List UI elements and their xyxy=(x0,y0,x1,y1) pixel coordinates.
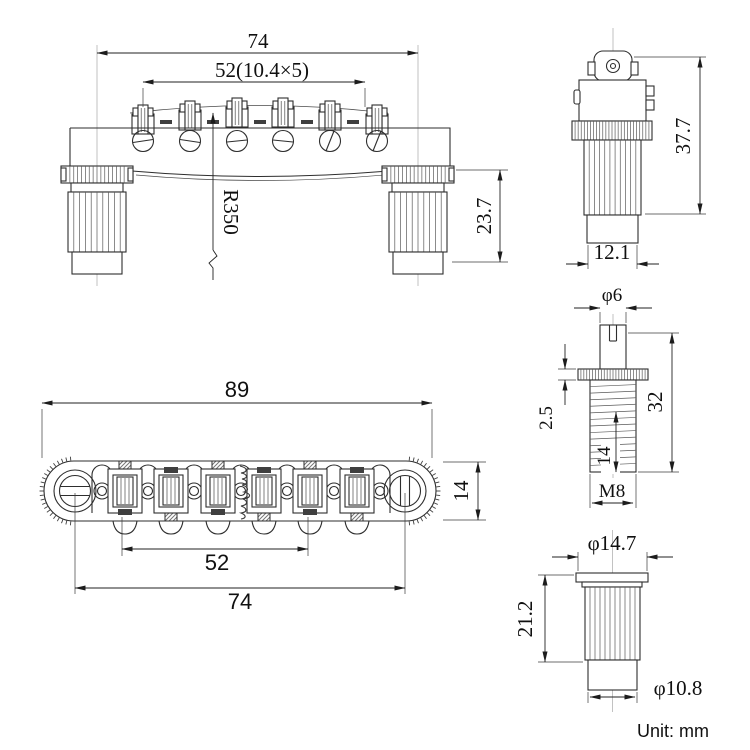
dim-front-string-spacing: 52(10.4×5) xyxy=(143,58,365,107)
side-view: 37.7 12.1 xyxy=(566,28,706,269)
dim-front-stud-height: 23.7 xyxy=(452,170,508,262)
dim-front-string-spacing-label: 52(10.4×5) xyxy=(215,58,309,82)
front-saddles xyxy=(132,98,388,134)
dim-front-overall-width-label: 74 xyxy=(248,29,270,53)
dim-stud-thread-size: M8 xyxy=(590,474,636,508)
dim-stud-length-label: 32 xyxy=(643,392,667,413)
top-underside-tabs xyxy=(113,521,369,534)
front-view: 74 52(10.4×5) R350 23.7 xyxy=(61,29,508,286)
stud-head xyxy=(600,325,626,369)
front-height-screws xyxy=(133,131,388,152)
side-thumbwheel xyxy=(572,121,652,140)
dim-stud-collar-thickness: 2.5 xyxy=(536,344,576,430)
dim-top-body-width-label: 14 xyxy=(449,480,473,502)
saddle-radius-arc xyxy=(130,106,388,114)
dim-front-saddle-radius: R350 xyxy=(209,113,243,280)
technical-drawing-page: 74 52(10.4×5) R350 23.7 xyxy=(0,0,750,750)
stud-collar xyxy=(578,369,648,380)
top-bridge-body xyxy=(44,461,436,521)
side-bushing xyxy=(584,140,641,243)
dim-bushing-body-diameter-label: φ10.8 xyxy=(654,676,703,700)
dim-top-overall-length: 89 xyxy=(42,377,432,458)
dim-front-stud-height-label: 23.7 xyxy=(472,198,496,235)
bushing-body xyxy=(576,573,648,690)
dim-bushing-height: 21.2 xyxy=(513,575,583,662)
dim-stud-thread-size-label: M8 xyxy=(599,481,625,502)
stud-view: φ6 2.5 32 14 M8 xyxy=(536,285,679,508)
dim-side-base-width-label: 12.1 xyxy=(594,240,631,264)
side-saddle xyxy=(588,51,638,81)
dim-top-saddle-span-label: 52 xyxy=(205,550,229,575)
dim-bushing-height-label: 21.2 xyxy=(513,601,537,638)
dim-top-overall-length-label: 89 xyxy=(225,377,249,402)
top-view: 89 14 52 74 xyxy=(40,377,487,614)
dim-top-post-spacing-label: 74 xyxy=(228,589,252,614)
dim-stud-thread-length-label: 14 xyxy=(594,446,615,466)
dim-top-saddle-span: 52 xyxy=(122,517,308,575)
dim-side-total-height-label: 37.7 xyxy=(671,118,695,155)
bushing-view: φ14.7 21.2 φ10.8 xyxy=(513,530,702,712)
unit-note: Unit: mm xyxy=(637,721,709,741)
dim-bushing-flange-diameter-label: φ14.7 xyxy=(588,531,637,555)
dim-side-base-width: 12.1 xyxy=(566,240,659,269)
guitar-bridge-technical-drawing: 74 52(10.4×5) R350 23.7 xyxy=(0,0,750,750)
dim-top-body-width: 14 xyxy=(443,462,486,520)
dim-stud-collar-thickness-label: 2.5 xyxy=(536,406,557,430)
front-left-post xyxy=(61,166,133,274)
dim-front-overall-width: 74 xyxy=(97,29,418,53)
dim-front-saddle-radius-label: R350 xyxy=(219,189,243,235)
dim-stud-head-diameter-label: φ6 xyxy=(602,285,622,306)
side-body xyxy=(574,80,654,121)
front-right-post xyxy=(382,166,454,274)
